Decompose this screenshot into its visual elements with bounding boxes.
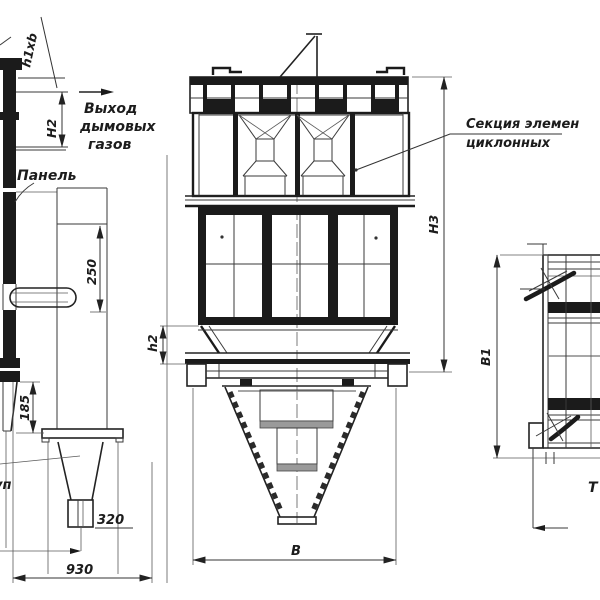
side-pipe (10, 288, 76, 307)
dimension-B (193, 388, 396, 565)
dim-B-label: B (291, 544, 301, 559)
center-view (160, 34, 562, 565)
cyclone-element-box (193, 113, 409, 196)
cyclone-element (297, 115, 349, 196)
dim-320-label: 320 (97, 513, 124, 528)
dim-h1xb-label: h1xb (18, 32, 40, 69)
dim-185-label: 185 (17, 395, 32, 421)
top-frame-band (190, 77, 408, 113)
dim-H2-label: H2 (44, 119, 59, 138)
section-label-line2: циклонных (466, 136, 551, 151)
left-partial-label: уп (0, 478, 11, 493)
right-partial-label: Т (588, 480, 599, 496)
section-label-line1: Секция элемен (466, 117, 579, 132)
gas-outlet-label-line2: дымовых (79, 119, 157, 135)
gas-outlet-label-line3: газов (88, 137, 132, 153)
dim-930-label: 930 (66, 563, 93, 578)
gas-outlet-arrow (79, 89, 114, 96)
dim-h2-label: h2 (145, 334, 160, 352)
cyclone-element (239, 115, 291, 196)
gas-outlet-label-line1: Выход (84, 101, 137, 117)
transition-section (185, 326, 410, 364)
dim-B1-label: B1 (478, 348, 493, 366)
dim-250-label: 250 (84, 259, 99, 285)
panel-label: Панель (17, 168, 77, 184)
dimension-h2 (160, 326, 199, 364)
casing-section (198, 207, 398, 325)
dim-H3-label: H3 (426, 215, 441, 234)
technical-drawing: h1xb Выход дымовых газов H2 Панель 250 1… (0, 0, 600, 600)
hopper (222, 386, 371, 524)
drawing-canvas: h1xb Выход дымовых газов H2 Панель 250 1… (0, 0, 600, 600)
right-view (493, 244, 600, 531)
